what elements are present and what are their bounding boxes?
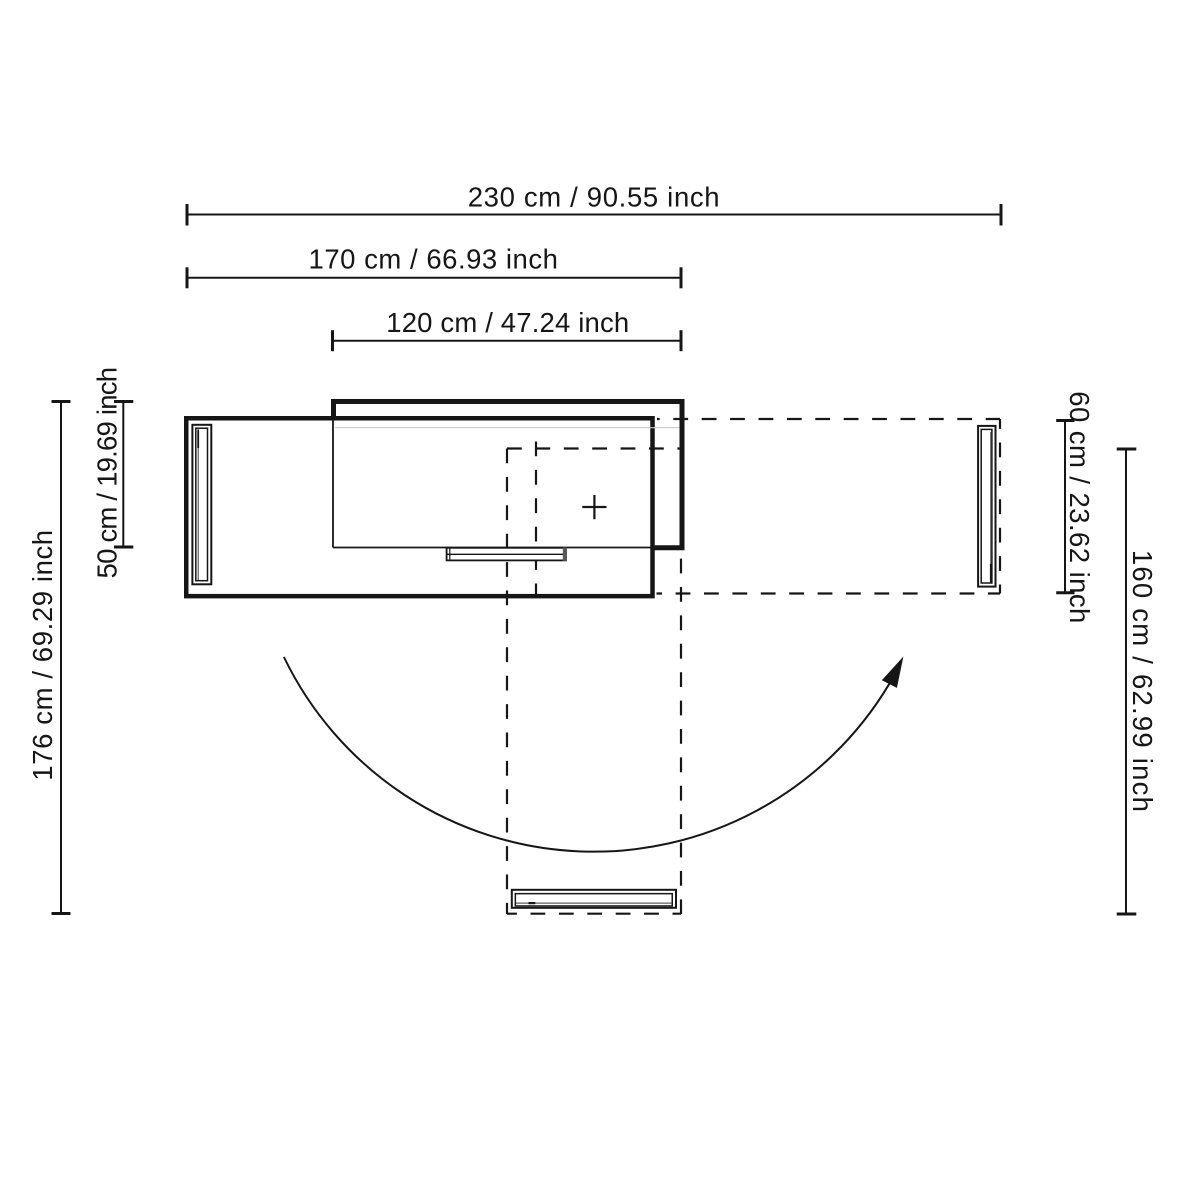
svg-text:230 cm / 90.55 inch: 230 cm / 90.55 inch — [468, 182, 721, 213]
svg-text:120 cm / 47.24 inch: 120 cm / 47.24 inch — [386, 307, 629, 338]
svg-text:60 cm / 23.62 inch: 60 cm / 23.62 inch — [1064, 391, 1095, 623]
svg-text:176 cm / 69.29 inch: 176 cm / 69.29 inch — [27, 529, 58, 780]
svg-text:170 cm / 66.93 inch: 170 cm / 66.93 inch — [309, 244, 559, 275]
svg-text:50 cm / 19.69 inch: 50 cm / 19.69 inch — [92, 368, 123, 579]
svg-text:160 cm / 62.99 inch: 160 cm / 62.99 inch — [1127, 550, 1158, 813]
